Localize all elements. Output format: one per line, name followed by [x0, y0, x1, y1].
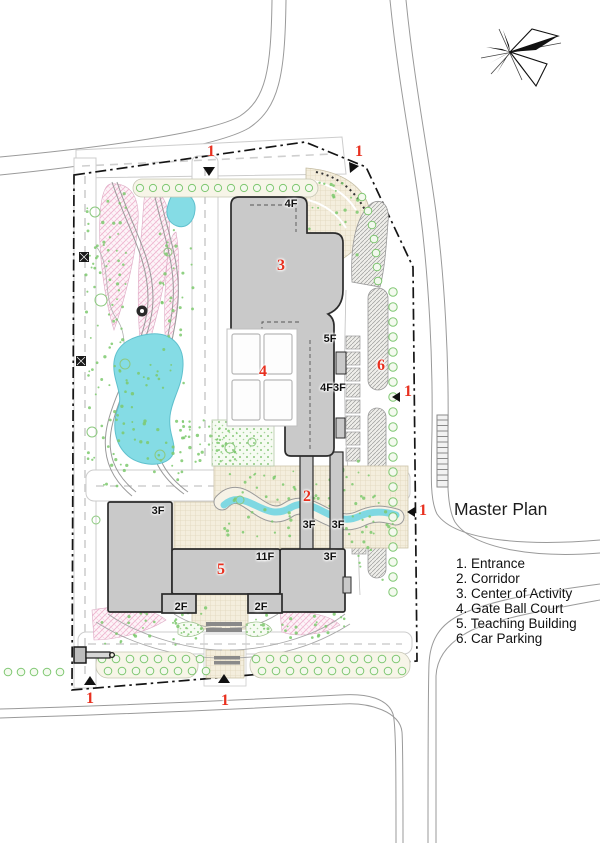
- page-title: Master Plan: [454, 499, 547, 520]
- red-marker-entrance-1: 1: [207, 143, 215, 161]
- red-marker-teaching: 5: [217, 561, 225, 579]
- floor-label-4f: 4F: [285, 198, 298, 210]
- crosswalk-ladder: [437, 415, 448, 487]
- legend-item-teaching: 5. Teaching Building: [456, 616, 577, 631]
- red-marker-entrance-5: 1: [86, 690, 94, 708]
- floor-label-3f-right-wing: 3F: [324, 551, 337, 563]
- floor-label-3f-corridor-a: 3F: [303, 519, 316, 531]
- red-marker-entrance-3: 1: [404, 383, 412, 401]
- floor-label-2f-left: 2F: [175, 601, 188, 613]
- north-arrow-icon: [481, 29, 561, 86]
- red-marker-activity: 3: [277, 257, 285, 275]
- floor-label-4f3f: 4F3F: [320, 382, 346, 394]
- floor-label-3f-left-wing: 3F: [152, 505, 165, 517]
- red-marker-entrance-2: 1: [355, 143, 363, 161]
- floor-label-11f: 11F: [256, 551, 274, 563]
- floor-label-2f-right: 2F: [255, 601, 268, 613]
- site-plan-drawing: [0, 0, 600, 843]
- red-marker-corridor: 2: [303, 488, 311, 506]
- legend-item-activity: 3. Center of Activity: [456, 586, 572, 601]
- corridor-strip: [300, 452, 313, 562]
- garden-fountain-icon: [137, 306, 148, 317]
- legend-item-parking: 6. Car Parking: [456, 631, 542, 646]
- legend-item-corridor: 2. Corridor: [456, 571, 520, 586]
- red-marker-parking: 6: [377, 357, 385, 375]
- legend-item-entrance: 1. Entrance: [456, 556, 525, 571]
- red-marker-entrance-4: 1: [419, 502, 427, 520]
- corridor-strip: [330, 452, 343, 562]
- floor-label-3f-corridor-b: 3F: [332, 519, 345, 531]
- floor-label-5f: 5F: [324, 333, 337, 345]
- red-marker-gate-ball: 4: [259, 363, 267, 381]
- red-marker-entrance-6: 1: [221, 692, 229, 710]
- master-plan-page: 1 1 1 1 1 1 2 3 4 5 6 4F 5F 4F3F 3F 3F 3…: [0, 0, 600, 843]
- legend-item-gate-ball: 4. Gate Ball Court: [456, 601, 563, 616]
